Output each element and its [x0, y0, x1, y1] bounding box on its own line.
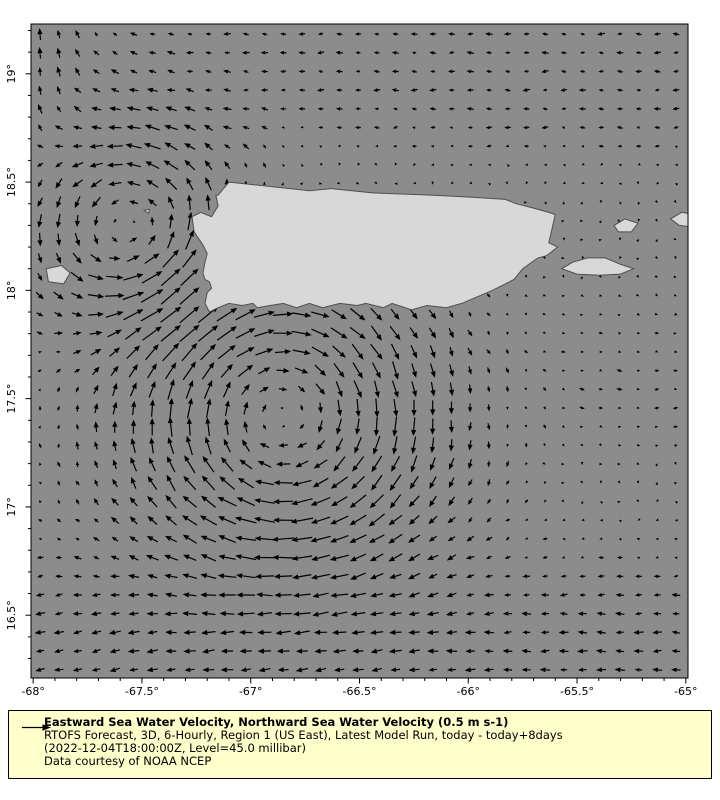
- longitude-axis: -68° -67.5° -67° -66.5° -66° -65.5° -65°: [21, 685, 697, 698]
- lat-tick-label: 17°: [5, 497, 18, 517]
- lon-tick-label: -68°: [21, 685, 44, 698]
- lon-tick-label: -65°: [674, 685, 697, 698]
- lat-tick-label: 17.5°: [5, 384, 18, 414]
- lon-tick-label: -66.5°: [343, 685, 377, 698]
- legend-box: Eastward Sea Water Velocity, Northward S…: [8, 710, 712, 779]
- reference-arrow-icon: [21, 722, 53, 733]
- legend-run-info: (2022-12-04T18:00:00Z, Level=45.0 millib…: [44, 742, 703, 755]
- legend-title: Eastward Sea Water Velocity, Northward S…: [44, 716, 703, 729]
- lat-tick-label: 18.5°: [5, 167, 18, 197]
- lat-tick-label: 19°: [5, 64, 18, 84]
- lon-tick-label: -65.5°: [560, 685, 594, 698]
- sea-area: [31, 24, 688, 678]
- legend-subtitle: RTOFS Forecast, 3D, 6-Hourly, Region 1 (…: [44, 729, 703, 742]
- ocean-velocity-forecast-page: -68° -67.5° -67° -66.5° -66° -65.5° -65°…: [0, 0, 720, 800]
- latitude-axis: 19° 18.5° 18° 17.5° 17° 16.5°: [5, 64, 18, 630]
- legend-credit: Data courtesy of NOAA NCEP: [44, 755, 703, 768]
- lat-tick-label: 16.5°: [5, 600, 18, 630]
- lon-tick-label: -67°: [239, 685, 262, 698]
- lon-tick-label: -66°: [457, 685, 480, 698]
- velocity-quiver-map: -68° -67.5° -67° -66.5° -66° -65.5° -65°…: [0, 0, 720, 706]
- lat-tick-label: 18°: [5, 281, 18, 301]
- lon-tick-label: -67.5°: [125, 685, 159, 698]
